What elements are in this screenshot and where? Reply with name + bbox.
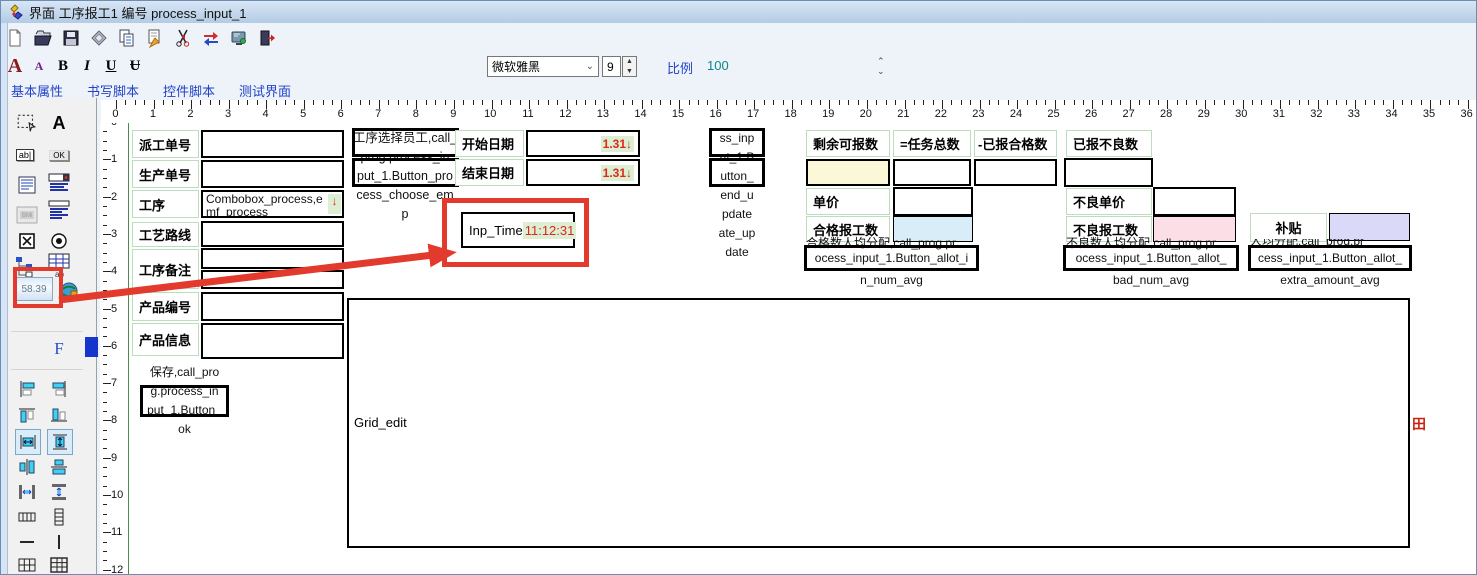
open-folder-icon[interactable] (31, 27, 55, 49)
columns-icon[interactable] (15, 505, 39, 529)
ruler-tick (103, 159, 111, 160)
ruler-tick (103, 346, 111, 347)
process-note-input-2[interactable] (201, 270, 344, 289)
ruler-tick (369, 100, 370, 105)
ruler-number: 3 (225, 108, 231, 120)
end-date-label: 结束日期 (455, 159, 524, 186)
vertical-ruler: 0123456789101112 (100, 123, 128, 574)
ruler-tick (103, 560, 107, 561)
ruler-tick (125, 100, 126, 105)
choose-emp-button-2[interactable] (352, 158, 459, 187)
ruler-tick (951, 100, 952, 105)
align-right-icon[interactable] (47, 377, 71, 401)
reported-bad-label: 已报不良数 (1066, 130, 1152, 157)
scale-stepper[interactable]: ⌃⌄ (877, 56, 885, 76)
ruler-number: 5 (300, 108, 306, 120)
ruler-tick (332, 100, 333, 105)
ruler-tick (858, 100, 859, 105)
ruler-number: 24 (1010, 108, 1022, 120)
ruler-tick (182, 100, 183, 105)
ruler-tick (103, 299, 107, 300)
swap-arrows-icon[interactable] (199, 27, 223, 49)
product-no-input[interactable] (201, 292, 344, 321)
ruler-tick (257, 100, 258, 105)
ruler-number: 17 (747, 108, 759, 120)
ruler-tick (1271, 100, 1272, 105)
subsidy-allot-button[interactable]: cess_input_1.Button_allot_ (1248, 245, 1412, 271)
ruler-tick (103, 197, 111, 198)
font-size-input[interactable]: 9 (602, 56, 621, 77)
reported-bad-input[interactable] (1064, 158, 1153, 187)
space-vertical-icon[interactable] (47, 480, 71, 504)
ruler-number: 28 (1160, 108, 1172, 120)
ruler-number: 14 (634, 108, 646, 120)
ruler-number: 29 (1198, 108, 1210, 120)
ruler-tick (103, 420, 111, 421)
tab-basic-properties[interactable]: 基本属性 (11, 81, 63, 99)
ruler-tick (313, 100, 314, 105)
field-label-product-info: 产品信息 (132, 323, 199, 356)
export-icon[interactable] (143, 27, 167, 49)
ruler-number: 36 (1460, 108, 1472, 120)
ruler-tick (623, 100, 624, 105)
tab-write-script[interactable]: 书写脚本 (87, 81, 139, 99)
process-note-input-1[interactable] (201, 248, 344, 269)
ruler-tick (103, 318, 107, 319)
grid-edit-control[interactable]: Grid_edit (347, 298, 1410, 548)
ruler-tick (660, 100, 661, 105)
ruler-tick (103, 141, 107, 142)
annotation-rect-toolbox (13, 267, 63, 308)
ruler-tick (103, 206, 107, 207)
window-left-edge (1, 23, 8, 574)
textbox-glyph: ab| (16, 149, 34, 161)
ruler-tick (745, 100, 746, 105)
ruler-number: 32 (1310, 108, 1322, 120)
grid-corner-icon[interactable]: 田 (1412, 414, 1426, 434)
function-tool-icon[interactable]: F (47, 337, 71, 361)
ruler-number: 2 (187, 108, 193, 120)
underline-button[interactable]: U (99, 58, 123, 75)
cut-icon[interactable] (171, 27, 195, 49)
align-top-icon[interactable] (15, 403, 39, 427)
ruler-tick (1149, 100, 1150, 105)
ruler-tick (103, 476, 107, 477)
window-title: 界面 工序报工1 编号 process_input_1 (29, 3, 246, 22)
rows-icon[interactable] (47, 505, 71, 529)
ruler-tick (670, 100, 671, 105)
stretch-horizontal-icon[interactable] (15, 429, 41, 455)
ruler-number: 20 (860, 108, 872, 120)
ruler-tick (103, 234, 111, 235)
ruler-tick (463, 100, 464, 105)
ruler-tick (473, 100, 474, 105)
production-no-input[interactable] (201, 160, 344, 188)
ruler-tick (103, 215, 107, 216)
ruler-tick (1289, 100, 1290, 105)
qualified-allot-button[interactable]: ocess_input_1.Button_allot_i (804, 245, 979, 271)
ruler-tick (1308, 100, 1309, 105)
ruler-tick (1120, 100, 1121, 105)
ruler-tick (445, 100, 446, 105)
toolbox-divider2 (11, 369, 83, 370)
ruler-tick (103, 402, 107, 403)
ruler-tick (576, 100, 577, 105)
ruler-number: 11 (111, 526, 122, 538)
ruler-tick (1299, 100, 1300, 105)
font-family-select[interactable]: 微软雅黑 ⌄ (487, 56, 599, 77)
main-toolbar (3, 25, 279, 51)
display-icon[interactable] (227, 27, 251, 49)
route-input[interactable] (201, 221, 344, 247)
annotation-rect-inp-time (442, 198, 589, 267)
ruler-tick (1036, 100, 1037, 105)
table-icon[interactable] (47, 553, 71, 575)
designer-window: 界面 工序报工1 编号 process_input_1 A A B I U Ʉ … (0, 0, 1477, 575)
ruler-tick (103, 551, 107, 552)
font-small-button[interactable]: A (27, 59, 51, 74)
ruler-number: 2 (111, 191, 117, 203)
ruler-number: 1 (150, 108, 156, 120)
select-tool-icon[interactable] (15, 111, 39, 135)
vertical-line-icon[interactable] (47, 530, 71, 554)
ruler-number: 11 (522, 108, 533, 120)
memo-tool-icon[interactable] (15, 173, 39, 197)
ruler-number: 7 (111, 377, 117, 389)
ruler-tick (210, 100, 211, 105)
ruler-tick (388, 100, 389, 105)
ruler-tick (1158, 100, 1159, 105)
product-info-input[interactable] (201, 323, 344, 359)
space-horizontal-icon[interactable] (15, 480, 39, 504)
align-bottom-icon[interactable] (47, 403, 71, 427)
ruler-tick (707, 100, 708, 105)
tab-test-ui[interactable]: 测试界面 (239, 81, 291, 99)
unit-price-label: 单价 (806, 188, 890, 215)
ruler-tick (172, 100, 173, 105)
textbox-tool-icon[interactable]: ab| (13, 143, 37, 167)
bad-allot-button[interactable]: ocess_input_1.Button_allot_ (1063, 245, 1239, 271)
ruler-tick (351, 100, 352, 105)
ruler-tick (848, 100, 849, 105)
end-update-button-2[interactable] (709, 158, 765, 187)
ruler-tick (276, 100, 277, 105)
ruler-number: 8 (413, 108, 419, 120)
ruler-tick (103, 411, 107, 412)
ruler-number: 1 (111, 153, 117, 165)
stretch-vertical-icon[interactable] (47, 429, 73, 455)
ruler-number: 27 (1122, 108, 1134, 120)
preview-icon[interactable] (87, 27, 111, 49)
ruler-number: 16 (709, 108, 721, 120)
dispatch-no-input[interactable] (201, 130, 344, 158)
ruler-tick (103, 458, 111, 459)
choose-emp-button-1[interactable] (352, 128, 459, 157)
ruler-number: 4 (263, 108, 269, 120)
ruler-tick (285, 100, 286, 105)
ruler-tick (1411, 100, 1412, 105)
scale-value: 100 (707, 58, 729, 73)
title-bar: 界面 工序报工1 编号 process_input_1 (1, 1, 1476, 23)
ruler-tick (103, 131, 107, 132)
blue-block-tool-icon[interactable] (85, 337, 98, 357)
tab-control-script[interactable]: 控件脚本 (163, 81, 215, 99)
ruler-number: 22 (935, 108, 947, 120)
ruler-tick (1233, 100, 1234, 105)
ruler-number: 4 (111, 265, 117, 277)
end-date-input[interactable]: 1.31↓ (526, 159, 640, 186)
ruler-tick (247, 100, 248, 105)
ruler-tick (103, 374, 107, 375)
ruler-number: 12 (111, 564, 123, 574)
ruler-tick (103, 523, 107, 524)
ruler-tick (1083, 100, 1084, 105)
grid-edit-label: Grid_edit (354, 415, 407, 430)
subsidy-label: 补贴 (1250, 213, 1327, 242)
ruler-tick (998, 100, 999, 105)
ruler-tick (407, 100, 408, 105)
horizontal-line-icon[interactable] (15, 530, 39, 554)
ruler-tick (103, 467, 107, 468)
ruler-tick (1177, 100, 1178, 105)
end-update-button-1[interactable] (709, 128, 765, 157)
ruler-number: 21 (897, 108, 909, 120)
toolbox-divider (11, 331, 83, 332)
ruler-tick (520, 100, 521, 105)
ruler-tick (163, 100, 164, 105)
ruler-number: 0 (112, 108, 118, 120)
ruler-number: 30 (1235, 108, 1247, 120)
ruler-number: 9 (111, 452, 117, 464)
ruler-number: 34 (1385, 108, 1397, 120)
ruler-tick (726, 100, 727, 105)
qualified-allot-name: n_num_avg (804, 273, 979, 287)
ruler-tick (876, 100, 877, 105)
ruler-tick (1402, 100, 1403, 105)
total-task-input[interactable] (893, 159, 971, 186)
font-family-value: 微软雅黑 (492, 58, 540, 75)
ruler-tick (1214, 100, 1215, 105)
chevron-down-icon: ⌄ (586, 61, 594, 72)
ruler-tick (398, 100, 399, 105)
combobox-dropdown-arrow[interactable]: ↓ (328, 194, 341, 214)
remaining-count-input[interactable] (806, 159, 890, 186)
field-label-route: 工艺路线 (132, 222, 199, 247)
ruler-tick (989, 100, 990, 105)
ruler-tick (103, 355, 107, 356)
format-bar: A A B I U Ʉ (3, 53, 147, 79)
ruler-number: 3 (111, 228, 117, 240)
ruler-tick (294, 100, 295, 105)
ruler-tick (360, 100, 361, 105)
total-task-label: =任务总数 (893, 130, 971, 157)
ruler-tick (632, 100, 633, 105)
ruler-tick (1111, 100, 1112, 105)
field-label-production-no: 生产单号 (132, 160, 199, 188)
ruler-tick (1440, 100, 1441, 105)
ruler-number: 13 (597, 108, 609, 120)
ruler-tick (200, 100, 201, 105)
exit-icon[interactable] (255, 27, 279, 49)
ruler-tick (103, 542, 107, 543)
checkbox-tool-icon[interactable] (15, 229, 39, 253)
ruler-number: 6 (338, 108, 344, 120)
scale-label: 比例 (667, 58, 693, 77)
bad-price-input[interactable] (1153, 187, 1236, 216)
combobox-tool-icon[interactable] (47, 171, 71, 195)
ruler-tick (435, 100, 436, 105)
ruler-tick (103, 262, 107, 263)
ruler-tick (501, 100, 502, 105)
ruler-tick (1224, 100, 1225, 105)
ruler-tick (103, 169, 107, 170)
ruler-tick (736, 100, 737, 105)
ruler-tick (103, 281, 107, 282)
strikethrough-button[interactable]: Ʉ (123, 58, 147, 75)
f-glyph: F (54, 339, 63, 359)
ruler-tick (1074, 100, 1075, 105)
ruler-tick (1374, 100, 1375, 105)
ruler-tick (914, 100, 915, 105)
ruler-tick (482, 100, 483, 105)
ruler-tick (1252, 100, 1253, 105)
ruler-tick (103, 486, 107, 487)
center-vertical-icon[interactable] (15, 455, 39, 479)
ruler-tick (1346, 100, 1347, 105)
ruler-number: 31 (1273, 108, 1285, 120)
save-button[interactable] (140, 385, 229, 417)
svg-text:BMi: BMi (22, 213, 32, 219)
ruler-tick (1045, 100, 1046, 105)
ruler-number: 8 (111, 414, 117, 426)
bad-price-label: 不良单价 (1066, 188, 1152, 215)
ruler-tick (1449, 100, 1450, 105)
ruler-tick (1327, 100, 1328, 105)
listbox-tool-icon[interactable] (47, 199, 71, 223)
save-icon[interactable] (59, 27, 83, 49)
horizontal-ruler: 0123456789101112131415161718192021222324… (101, 100, 1476, 123)
field-label-process-note: 工序备注 (132, 249, 199, 289)
start-date-label: 开始日期 (455, 130, 524, 157)
ruler-tick (1186, 100, 1187, 105)
process-combobox-text: Combobox_process,emf_process (206, 193, 336, 218)
ruler-tick (557, 100, 558, 105)
ruler-tick (651, 100, 652, 105)
ruler-tick (689, 100, 690, 105)
align-left-icon[interactable] (15, 377, 39, 401)
ruler-tick (103, 448, 107, 449)
start-date-value: 1.31↓ (601, 136, 634, 152)
ruler-number: 0 (111, 123, 117, 128)
ruler-tick (144, 100, 145, 105)
ruler-number: 19 (822, 108, 834, 120)
label-tool-icon[interactable]: A (47, 111, 71, 135)
copy-icon[interactable] (115, 27, 139, 49)
ruler-number: 10 (111, 489, 123, 501)
ruler-number: 18 (785, 108, 797, 120)
ruler-tick (1027, 100, 1028, 105)
ruler-tick (538, 100, 539, 105)
field-label-process: 工序 (132, 190, 199, 218)
ruler-tick (103, 187, 107, 188)
ruler-tick (970, 100, 971, 105)
subsidy-input[interactable] (1329, 213, 1410, 241)
ruler-number: 5 (111, 303, 117, 315)
ruler-number: 7 (375, 108, 381, 120)
font-size-value: 9 (607, 60, 614, 74)
ruler-tick (1008, 100, 1009, 105)
ruler-tick (103, 253, 107, 254)
radio-tool-icon[interactable] (47, 229, 71, 253)
ruler-tick (103, 383, 111, 384)
ruler-number: 33 (1348, 108, 1360, 120)
ruler-number: 9 (450, 108, 456, 120)
ruler-tick (1365, 100, 1366, 105)
grid-lines-icon[interactable] (15, 553, 39, 575)
ruler-tick (103, 243, 107, 244)
remaining-count-label: 剩余可报数 (806, 130, 890, 157)
reported-qualified-input[interactable] (974, 159, 1057, 186)
font-size-stepper[interactable]: ▲▼ (622, 56, 637, 77)
ruler-number: 15 (672, 108, 684, 120)
bad-allot-name: bad_num_avg (1063, 273, 1239, 287)
ruler-tick (595, 100, 596, 105)
ruler-tick (1196, 100, 1197, 105)
ruler-number: 35 (1423, 108, 1435, 120)
image-tool-icon[interactable]: BMi (15, 203, 39, 227)
reported-qualified-label: -已报合格数 (974, 130, 1057, 157)
ruler-tick (1458, 100, 1459, 105)
field-label-dispatch-no: 派工单号 (132, 130, 199, 158)
ruler-tick (426, 100, 427, 105)
ruler-number: 25 (1047, 108, 1059, 120)
ruler-tick (323, 100, 324, 105)
ruler-tick (103, 336, 107, 337)
ruler-tick (219, 100, 220, 105)
ruler-tick (135, 100, 136, 105)
end-date-value: 1.31↓ (601, 165, 634, 181)
ruler-tick (895, 100, 896, 105)
ruler-tick (1064, 100, 1065, 105)
ruler-tick (933, 100, 934, 105)
ruler-tick (103, 514, 107, 515)
ruler-tick (811, 100, 812, 105)
ruler-tick (103, 327, 107, 328)
ruler-tick (103, 150, 107, 151)
ruler-tick (1261, 100, 1262, 105)
process-combobox[interactable]: Combobox_process,emf_process ↓ (201, 190, 344, 218)
italic-button[interactable]: I (75, 58, 99, 75)
ruler-tick (103, 309, 111, 310)
ruler-tick (1336, 100, 1337, 105)
ruler-tick (783, 100, 784, 105)
ruler-tick (238, 100, 239, 105)
button-tool-icon[interactable]: OK (47, 143, 71, 167)
ruler-tick (103, 430, 107, 431)
unit-price-input[interactable] (893, 187, 973, 216)
ruler-tick (614, 100, 615, 105)
ruler-number: 6 (111, 340, 117, 352)
ruler-tick (103, 225, 107, 226)
ruler-tick (103, 570, 111, 571)
ruler-tick (961, 100, 962, 105)
bold-button[interactable]: B (51, 58, 75, 75)
center-horizontal-icon[interactable] (47, 455, 71, 479)
ruler-tick (1102, 100, 1103, 105)
start-date-input[interactable]: 1.31↓ (526, 130, 640, 157)
ruler-tick (886, 100, 887, 105)
ruler-tick (923, 100, 924, 105)
